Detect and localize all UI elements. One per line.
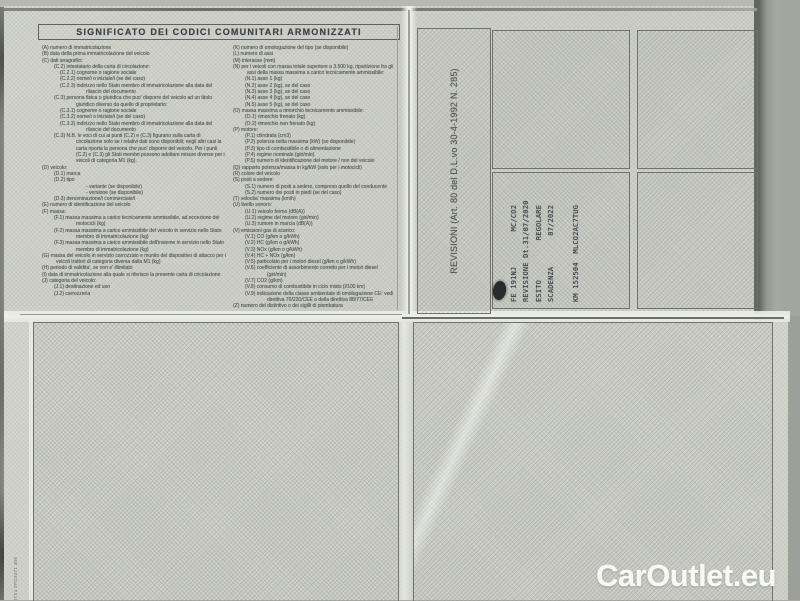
code-entry: (F.1) massa massima a carico tecnicament…	[42, 215, 226, 228]
revisioni-column: REVISIONI (Art. 80 del D.L.vo 30-4-1992 …	[417, 28, 491, 314]
code-entry: (V.9) indicazione della classe ambiental…	[233, 291, 398, 304]
scan-edge-right-bottom	[788, 316, 800, 600]
code-entry: (P.5) numero di identificazione del moto…	[233, 158, 398, 164]
code-entry: (C.3) N.B. le voci di cui ai punti (C.2)…	[42, 133, 226, 164]
blank-hatched-panel-left	[33, 322, 399, 601]
stamp-line	[558, 180, 570, 302]
fold-line-middle-right	[402, 317, 784, 319]
codes-left-column: (A) numero di immatricolazione(B) data d…	[42, 45, 226, 309]
stamp-line: FE 191NJ MC/CO2	[508, 180, 520, 302]
fold-crease-top	[0, 8, 757, 11]
revision-box-top-left	[492, 30, 630, 169]
code-entry: (C.3) persona fisica o giuridica che puo…	[42, 95, 226, 108]
codes-legend: (A) numero di immatricolazione(B) data d…	[42, 45, 398, 309]
stamp-line: SCADENZA 07/2022	[545, 180, 557, 302]
stamp-line: KM 152504 MLCO2AC7TUG	[570, 180, 582, 302]
codes-legend-title: SIGNIFICATO DEI CODICI COMUNITARI ARMONI…	[38, 24, 400, 40]
code-entry: (Z) numero del distintivo o dei sigilli …	[233, 303, 398, 309]
fold-band-vertical-bottom	[397, 322, 413, 600]
code-entry: (V.6) coefficiente di assorbimento corre…	[233, 265, 398, 278]
code-entry: (F.3) massa massima a carico ammissibile…	[42, 240, 226, 253]
fold-line-middle-left	[20, 314, 402, 315]
scan-shadow-right	[754, 0, 800, 320]
stamp-line: ESITO REGOLARE	[533, 180, 545, 302]
code-entry: (G) massa del veicolo in servizio carroz…	[42, 253, 226, 266]
revision-box-top-right	[637, 30, 758, 169]
codes-right-column: (K) numero di omologazione del tipo (se …	[233, 45, 398, 309]
revision-stamp: FE 191NJ MC/CO2REVISIONE Dt.31/07/2020ES…	[508, 180, 584, 302]
revision-box-bottom-right	[637, 172, 758, 309]
code-entry: (C.3.3) indirizzo nello Stato membro di …	[42, 121, 226, 134]
code-entry: (F.2) massa massima a carico ammissibile…	[42, 228, 226, 241]
code-entry: (N) per i veicoli con massa totale super…	[233, 64, 398, 77]
watermark: CarOutlet.eu	[596, 558, 776, 594]
code-entry: (J.2) carrozzeria	[42, 291, 226, 297]
code-entry: (C.2.3) indirizzo nello Stato membro di …	[42, 83, 226, 96]
fold-line-vertical	[408, 10, 410, 314]
stamp-line: REVISIONE Dt.31/07/2020	[520, 180, 532, 302]
revisioni-label: REVISIONI (Art. 80 del D.L.vo 30-4-1992 …	[449, 68, 459, 274]
code-entry: (S.1) numero di posti a sedere, compreso…	[233, 184, 398, 190]
form-serial-number: ITIIu 3PO3471 408	[13, 533, 18, 600]
